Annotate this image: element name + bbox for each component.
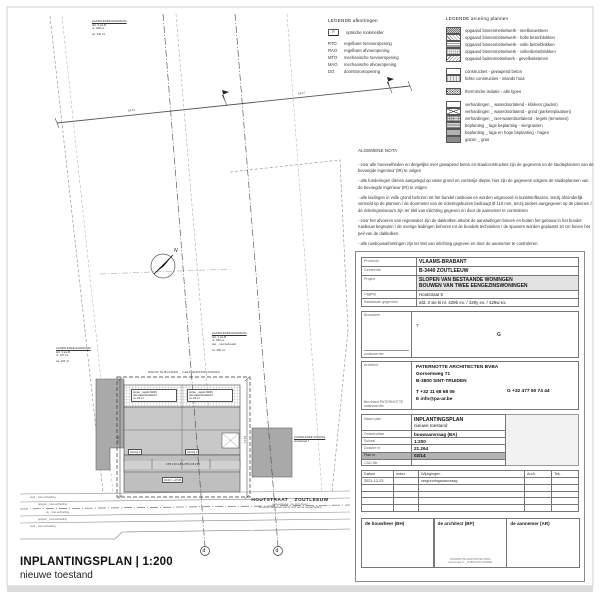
survey-marker-flag [387,77,394,88]
street-line-label-2: greppel _ kws-verharding [38,503,67,506]
dimension-rear-2: 16.57 [298,92,305,96]
architect-stamp: PATERNOTTE ARCHITECTEN BVBA Gorsemweg 71… [435,558,506,564]
legend-row: beplanting _ lage en hoge beplanting - h… [446,129,594,136]
kadaster-value: afd. 3 sie B nr. 429b ex. / 429y ex. / 4… [417,299,579,307]
revision-row [362,491,579,498]
dimension-rear-1: 16.51 [128,109,135,113]
hatch-swatch-crosshatch [446,88,461,95]
hatch-swatch-dense-diagonal [446,27,461,34]
parcel-label-right: AANPALENDE EIGENDOM afd. 3 sie B nr. 430… [212,332,272,352]
parcel-label-left: AANPALENDE EIGENDOM afd. 3 sie B nr. 427… [56,347,118,364]
client-phone-label: T [416,323,419,328]
logo-placeholder [506,414,579,466]
hatch-swatch-stripes [446,122,461,129]
hatch-swatch-horizontal-lines [446,41,461,48]
architect-gsm: G +32 477 50 74 44 [507,388,550,395]
hatch-swatch-white [446,68,461,75]
architect-box: Architect Bernhard PATERNOTTE zaakvoerde… [361,361,579,410]
legend-hatching: LEGENDE arcering plannen opgaand binnenm… [446,16,594,143]
legend-row: lichte constructies - inlands hout [446,75,594,82]
title-block: Provincie VLAAMS-BRABANT Gemeente B-3440… [355,251,585,582]
schaal-value: 1:200 [412,438,505,444]
terrace-label-1: terras _ tegels 60/60 niet-waterdoorlate… [131,389,177,402]
revision-row [362,498,579,505]
north-arrow-icon [151,254,175,278]
legend-row: gazon _ gras [446,136,594,143]
legend-row: opgaand binnenmetselwerk - holle betonbl… [446,34,594,41]
hatch-swatch-gray-mid [446,129,461,136]
legend-row: DO doorstroomopening [328,68,444,75]
legend-row: opgaand binnenmetselwerk - cellenbetonbl… [446,48,594,55]
street-line-label-5: rand _ kws-verharding [30,525,56,528]
parcel-label-top: AANPALENDE EIGENDOM afd. 3 sie B nr. 428… [92,20,154,37]
provincie-value: VLAAMS-BRABANT [417,258,579,267]
terrace-label-2: terras _ tegels 60/60 niet-waterdoorlate… [187,389,233,402]
client-box: Bouwheer zaakvoerder T G [361,311,579,358]
project-info-table: Provincie VLAAMS-BRABANT Gemeente B-3440… [361,257,579,307]
parcel-label-neighbor-house: AANPALENDE WONING Houtstraat 7 [294,436,349,443]
gemeente-value: B-3440 ZOUTLEEUW [417,267,579,276]
house-2-label: woning 2 [185,449,199,455]
level-label: ±0.00 = +37.25 [162,477,183,483]
client-gsm-label: G [497,332,501,338]
legend-hatch-title: LEGENDE arcering plannen [446,16,594,21]
dossier-value: 21.264 [412,445,505,451]
street-line-label-4: greppel _ kws-verharding [38,518,67,521]
legend-row: beplanting _ lage beplanting - siergrass… [446,122,594,129]
hatch-swatch-wood [446,75,461,82]
hatch-swatch-open-diagonal [446,34,461,41]
signature-contractor: de aannemer (AR) [506,518,579,568]
dimension-right: 17.63 [244,436,248,443]
new-building-label: NIEUW TE BOUWEN _ 2 EENGEZINSWONINGEN [118,371,250,375]
north-label: N [174,248,178,254]
legend-row: opgaand buitenmetselwerk - gevelbakstene… [446,55,594,62]
revision-table: Datum Index Wijzigingen Arch. Tek. 2021-… [361,470,579,512]
hatch-swatch-light-grid [446,48,461,55]
smoke-detector-icon: R [328,29,339,36]
hatch-swatch-gray-dark [446,136,461,143]
legend-row: RTO regelbare toevoeropening [328,40,444,47]
survey-marker-flag [222,90,229,101]
ligging-value: Houtstraat 5 [417,291,579,299]
page-title: INPLANTINGSPLAN | 1:200 [20,556,173,568]
facade-dimensions: 2.85 3.15 2.85 2.85 3.15 2.85 [126,463,240,466]
legend-row: thermische isolatie - alle types [446,88,594,95]
architect-tel: T +32 11 68 68 06 [416,389,574,396]
signature-boxes: de bouwheer (BH) de architect (BP) PATER… [361,518,579,568]
general-notes-title: ALGEMENE NOTA [358,148,594,155]
revision-row [362,505,579,512]
signature-client: de bouwheer (BH) [361,518,434,568]
legend-row: verhardingen _ waterdoorlatend - grind (… [446,108,594,115]
architect-street: Gorsemweg 71 [416,371,574,378]
plan-name-sub: nieuwe toestand [414,423,503,428]
street-line-label-3: as _ kws-verharding [46,511,69,514]
hatch-swatch-crossed-box [446,108,461,115]
legend-row: constructies - gewapend beton [446,68,594,75]
architect-email: E info@pa-ar.be [416,396,574,403]
sheet-shadow [7,586,593,592]
cadfile-value [412,460,505,466]
legend-row: MAO mechanische afvoeropening [328,61,444,68]
legend-row: opgaand binnenmetselwerk - snelbouwsteen [446,27,594,34]
revision-row: 2021-12-23 vergunningsaanvraag [362,478,579,485]
street-line-label-1: rand _ kws-verharding [30,496,56,499]
legend-row: MTO mechanische toevoeropening [328,54,444,61]
page-subtitle: nieuwe toestand [20,570,93,581]
signature-architect: de architect (BP) PATERNOTTE ARCHITECTEN… [434,518,507,568]
dimension-left: 17.63 [117,436,121,443]
general-notes: ALGEMENE NOTA - voor alle hoeveelheden e… [358,148,594,251]
project-value: SLOPEN VAN BESTAANDE WONINGEN BOUWEN VAN… [417,276,579,291]
legend-row: opgaand binnenmetselwerk - volle betonbl… [446,41,594,48]
revision-row [362,484,579,491]
drawing-sheet: AANPALENDE EIGENDOM afd. 3 sie B nr. 428… [0,0,600,600]
ontwerpfase-value: bouwaanvraag (BA) [412,431,505,437]
hatch-swatch-white [446,101,461,108]
house-1-label: woning 1 [128,449,142,455]
plannr-value: 02/14 [412,453,505,459]
hatch-swatch-reverse-diagonal [446,55,461,62]
street-name-block: HOUTSTRAAT _ ZOUTLEEUW gemeenteweg _ ca.… [230,498,350,510]
legend-row: verhardingen _ waterdoorlatend - klinker… [446,101,594,108]
section-marker-d1: d [203,548,206,554]
section-marker-d2: d [276,548,279,554]
legend-row: RAO regelbare afvoeropening [328,47,444,54]
legend-row: R optische rookmelder [328,29,444,36]
architect-name: PATERNOTTE ARCHITECTEN BVBA [416,364,574,371]
hatch-swatch-grid [446,115,461,122]
legend-abbreviations: LEGENDE afkortingen R optische rookmelde… [328,18,444,75]
legend-row: verhardingen _ niet-waterdoorlatend - te… [446,115,594,122]
architect-city: B-3800 SINT-TRUIDEN [416,378,574,385]
plan-meta-block: Naam plan INPLANTINGSPLAN nieuwe toestan… [361,414,579,466]
legend-abbrev-title: LEGENDE afkortingen [328,18,444,23]
